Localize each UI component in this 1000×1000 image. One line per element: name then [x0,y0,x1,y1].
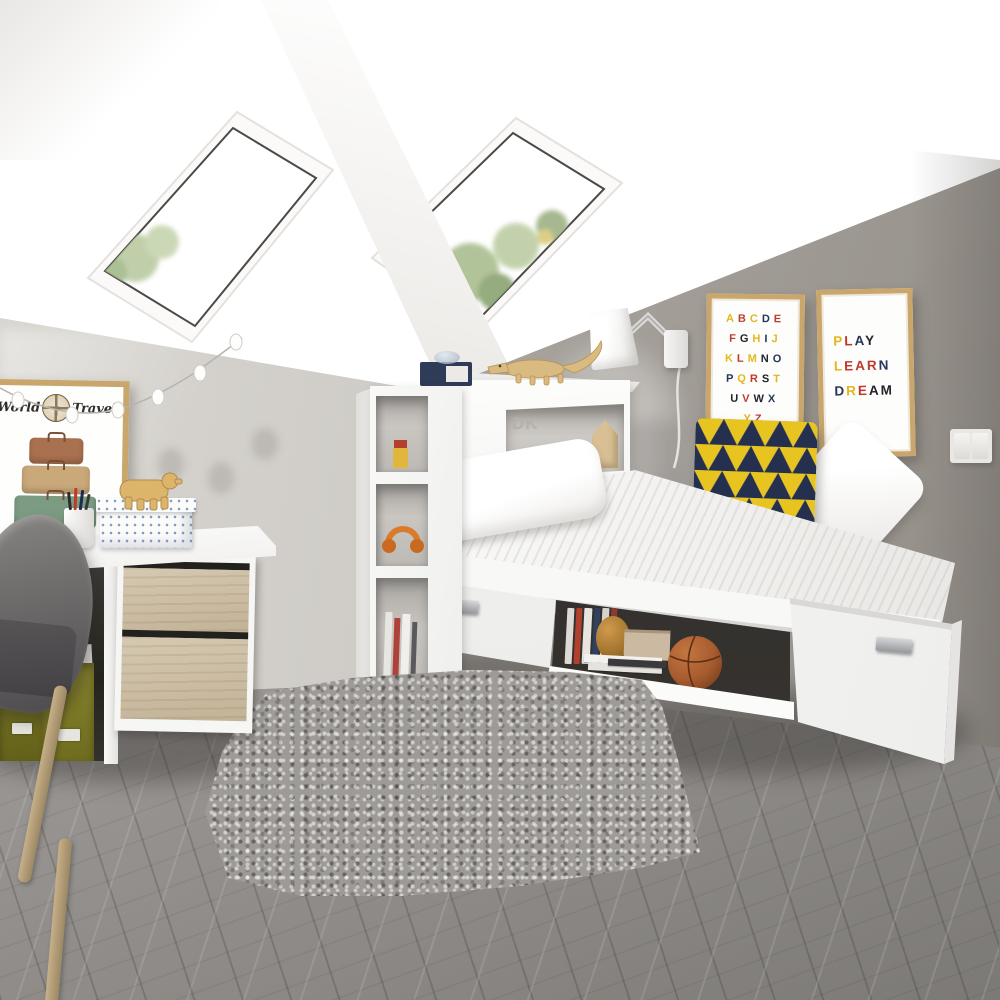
garland-bulbs [12,334,242,423]
suitcase-handle [47,460,65,470]
navy-box-label [446,366,468,382]
oak-drawer-bottom [120,637,248,722]
lamp-cord [674,366,680,468]
desk-drawer-unit [114,553,256,734]
switch-key-right [972,433,988,459]
drawer-handle [875,636,912,653]
headboard-bookcase [370,386,462,714]
play-learn-dream-letters: PLAYLEARNDREAM [821,293,909,404]
box-label [12,723,32,734]
toy-figure [394,440,407,448]
wooden-crocodile-toy [482,336,612,388]
wooden-bear-figurine [112,466,184,512]
garland-shadow [208,462,234,494]
bedroom-photo: ABCDEFGHIJKLMNOPQRSTUVWXYZ PLAYLEARNDREA… [0,0,1000,1000]
alphabet-letters: ABCDEFGHIJKLMNOPQRSTUVWXYZ [710,299,799,430]
wall-lamp-base [664,330,688,368]
light-switch [950,429,992,463]
suitcase-handle [46,490,64,500]
toy-figure [393,448,408,468]
chair-seat [0,617,78,699]
bookcase-cubby-middle [376,484,428,566]
box-label [58,729,80,741]
string-light-garland [0,300,320,440]
basketball [666,634,724,692]
glass-bowl [434,351,460,364]
oak-drawer-top [122,568,249,633]
orange-headphones [380,500,424,562]
patterned-storage-box [100,506,192,548]
dk-bookend: DK [512,414,539,434]
switch-key-left [954,433,970,459]
bookcase-cubby-top [376,396,428,472]
